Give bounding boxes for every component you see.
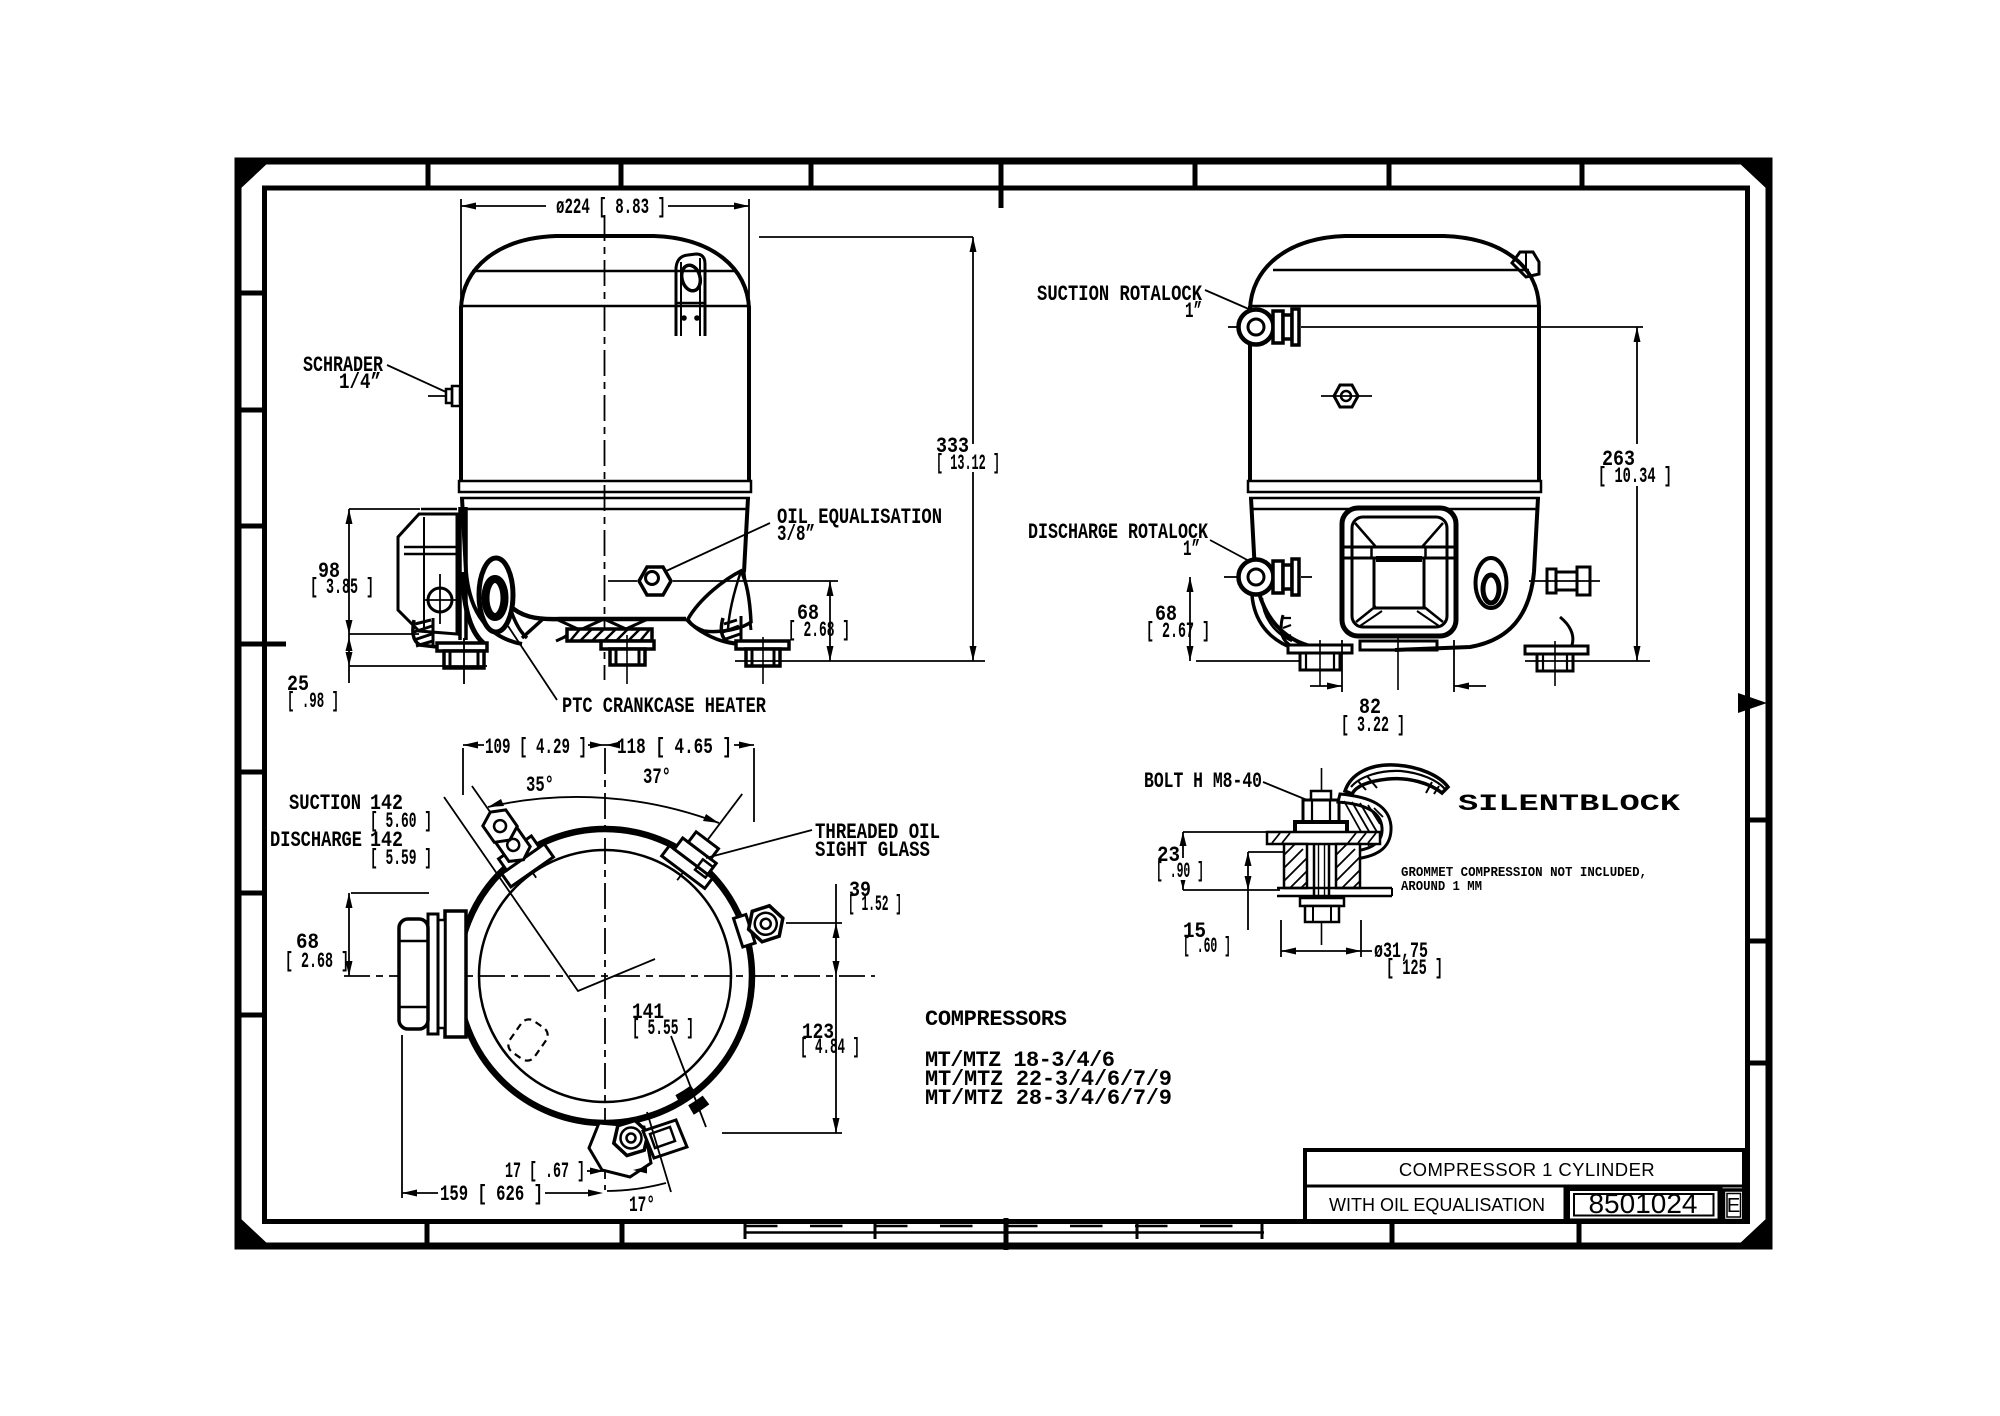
- svg-text:ø224 [ 8.83 ]: ø224 [ 8.83 ]: [556, 195, 666, 220]
- svg-text:[ 3.22 ]: [ 3.22 ]: [1341, 713, 1405, 738]
- svg-text:[ .90 ]: [ .90 ]: [1156, 859, 1204, 884]
- svg-text:MT/MTZ 28-3/4/6/7/9: MT/MTZ 28-3/4/6/7/9: [925, 1086, 1172, 1111]
- svg-text:1”: 1”: [1183, 537, 1200, 562]
- svg-text:BOLT H M8-40: BOLT H M8-40: [1144, 769, 1262, 794]
- svg-text:[ .60 ]: [ .60 ]: [1183, 934, 1231, 959]
- svg-text:[ 2.67 ]: [ 2.67 ]: [1146, 619, 1210, 644]
- svg-text:[ 4.84 ]: [ 4.84 ]: [800, 1035, 860, 1060]
- svg-text:37°: 37°: [643, 765, 671, 790]
- svg-text:WITH OIL EQUALISATION: WITH OIL EQUALISATION: [1329, 1195, 1545, 1215]
- svg-text:[ 5.59 ]: [ 5.59 ]: [370, 846, 432, 871]
- svg-text:3/8”: 3/8”: [777, 522, 815, 547]
- svg-text:35°: 35°: [526, 773, 554, 798]
- svg-text:[ 13.12 ]: [ 13.12 ]: [936, 451, 1000, 476]
- svg-text:17 [ .67 ]: 17 [ .67 ]: [505, 1159, 585, 1184]
- svg-text:118 [ 4.65 ]: 118 [ 4.65 ]: [617, 735, 732, 760]
- svg-text:1/4”: 1/4”: [339, 370, 381, 395]
- svg-text:8501024: 8501024: [1588, 1188, 1697, 1219]
- svg-text:DISCHARGE ROTALOCK: DISCHARGE ROTALOCK: [1028, 520, 1209, 545]
- svg-text:[ 10.34 ]: [ 10.34 ]: [1598, 464, 1672, 489]
- svg-text:[ 1.52 ]: [ 1.52 ]: [848, 892, 902, 917]
- svg-text:109 [ 4.29 ]: 109 [ 4.29 ]: [485, 735, 587, 760]
- svg-text:SUCTION ROTALOCK: SUCTION ROTALOCK: [1037, 282, 1203, 307]
- svg-text:[ 2.68 ]: [ 2.68 ]: [788, 618, 850, 643]
- svg-text:[ 125 ]: [ 125 ]: [1386, 956, 1443, 981]
- svg-text:DISCHARGE: DISCHARGE: [270, 828, 362, 853]
- svg-text:[ 5.55 ]: [ 5.55 ]: [632, 1016, 694, 1041]
- svg-text:[ 3.85 ]: [ 3.85 ]: [310, 575, 374, 600]
- svg-text:AROUND 1 MM: AROUND 1 MM: [1401, 879, 1482, 895]
- svg-text:PTC CRANKCASE HEATER: PTC CRANKCASE HEATER: [562, 694, 767, 719]
- svg-text:[ .98 ]: [ .98 ]: [287, 689, 339, 714]
- svg-text:COMPRESSOR 1 CYLINDER: COMPRESSOR 1 CYLINDER: [1399, 1159, 1655, 1180]
- svg-text:COMPRESSORS: COMPRESSORS: [925, 1007, 1067, 1032]
- svg-text:159 [ 626 ]: 159 [ 626 ]: [440, 1182, 543, 1207]
- svg-text:1”: 1”: [1185, 299, 1202, 324]
- svg-text:SIGHT GLASS: SIGHT GLASS: [815, 838, 930, 863]
- svg-text:SUCTION: SUCTION: [289, 791, 361, 816]
- svg-text:E: E: [1727, 1195, 1740, 1217]
- svg-text:[ 2.68 ]: [ 2.68 ]: [285, 949, 349, 974]
- svg-text:SILENTBLOCK: SILENTBLOCK: [1458, 791, 1680, 817]
- svg-text:17°: 17°: [629, 1193, 655, 1218]
